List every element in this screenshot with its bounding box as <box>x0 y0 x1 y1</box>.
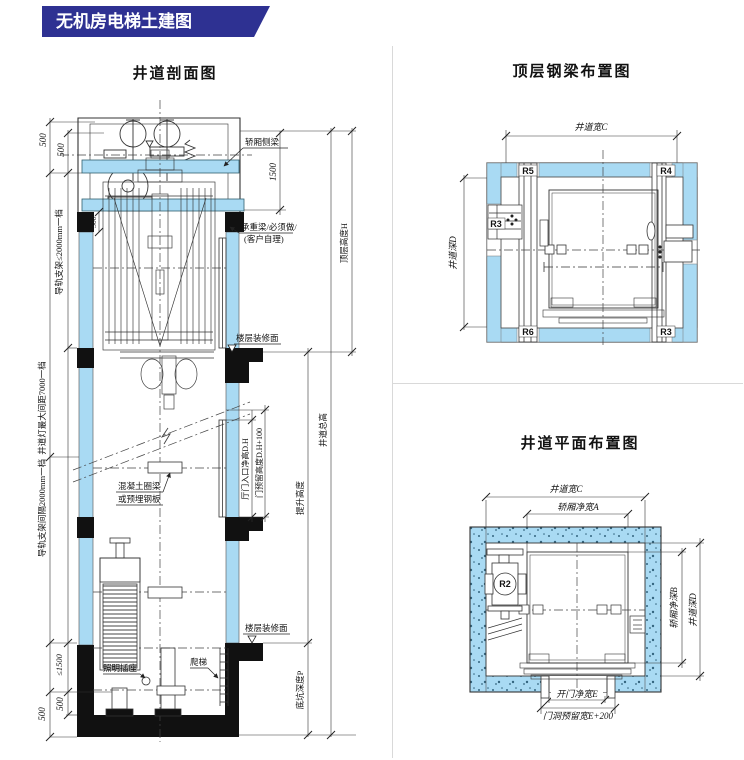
dim-guide-bracket-top: 导轨支架≤2000mm一档 <box>54 209 64 295</box>
note-floor-finish-lower: 楼层装修面 <box>245 623 288 633</box>
top-beam-plan-drawing: 井道宽C 井道深D <box>400 95 744 385</box>
dim-500-bottom-outer: 500 <box>37 707 47 721</box>
note-ring-beam-1: 混凝土圈梁 <box>118 481 161 491</box>
landing-doors <box>219 238 226 517</box>
car-beams <box>82 160 244 211</box>
dim-pit-depth: 底坑深度P <box>295 670 305 709</box>
page-title: 无机房电梯土建图 <box>56 12 192 31</box>
dim-shaft-depth-d: 井道深D <box>448 236 458 270</box>
mark-r5: R5 <box>522 166 534 176</box>
dim-guide-bracket-mid: 导轨支架间隔2000mm一档 <box>37 459 47 557</box>
beam-plan-title: 顶层钢梁布置图 <box>400 60 744 81</box>
note-load-beam-1: 承重梁/必须做/ <box>241 222 297 232</box>
dim-plan-shaft-depth: 井道深D <box>688 593 698 627</box>
dim-door-clear-height: 厅门入口净高D.H <box>240 438 250 500</box>
guide-span-line <box>544 245 663 272</box>
dim-500-top-outer: 500 <box>38 133 48 147</box>
mark-r6: R6 <box>522 327 534 337</box>
note-car-beam: 轿厢侧梁 <box>245 137 280 147</box>
mark-r3-bottom: R3 <box>660 327 672 337</box>
section-title: 井道剖面图 <box>20 62 330 83</box>
dim-500-top-inner: 500 <box>56 143 66 157</box>
mark-r3-left: R3 <box>490 219 502 229</box>
dim-top-floor-height: 顶层高度H <box>339 223 349 263</box>
dim-300: 300 <box>89 216 98 229</box>
tension-lines <box>488 618 522 640</box>
mark-r4: R4 <box>660 166 672 176</box>
dim-plan-car-width: 轿厢净宽A <box>557 502 599 512</box>
beam-plan-car <box>543 190 664 323</box>
note-load-beam-2: (客户自理) <box>244 234 284 244</box>
dim-door-reserved-width: 门洞预留宽E+200 <box>543 711 614 721</box>
dim-shaft-width-c: 井道宽C <box>574 122 608 132</box>
break-mark <box>162 428 170 444</box>
dim-le1500: ≤1500 <box>54 653 64 675</box>
dim-plan-car-depth: 轿厢净深B <box>669 587 679 629</box>
mark-r2: R2 <box>499 579 511 589</box>
note-floor-finish-upper: 楼层装修面 <box>236 333 279 343</box>
title-banner: 无机房电梯土建图 <box>42 6 270 37</box>
dim-door-clear-width: 开门净宽E <box>556 689 598 699</box>
dim-total-height: 井道总高 <box>318 413 328 447</box>
dim-500-bottom-inner: 500 <box>55 697 65 711</box>
dim-plan-shaft-width: 井道宽C <box>549 484 583 494</box>
shaft-plan-title: 井道平面布置图 <box>408 432 744 453</box>
guide-clips <box>519 605 645 633</box>
shaft-plan-car <box>520 552 635 679</box>
dim-travel-height: 提升高度 <box>295 481 305 516</box>
note-lighting-socket: 照明插座 <box>103 663 138 673</box>
panel-divider-vertical <box>392 46 393 758</box>
dim-door-reserved-height: 门预留高度D.H+100 <box>254 428 264 498</box>
dim-shaft-light-spacing: 井道灯最大间距7000一档 <box>37 361 47 455</box>
note-ladder: 爬梯 <box>190 657 208 667</box>
shaft-plan-drawing: 井道宽C 轿厢净宽A <box>400 470 744 760</box>
dim-1500: 1500 <box>268 163 278 182</box>
elevator-car <box>103 150 215 409</box>
note-ring-beam-2: 或预埋钢板 <box>118 494 161 504</box>
shaft-section-drawing: 500 500 导轨支架≤2000mm一档 井道灯最大间距7000一档 导轨支架… <box>30 85 360 755</box>
